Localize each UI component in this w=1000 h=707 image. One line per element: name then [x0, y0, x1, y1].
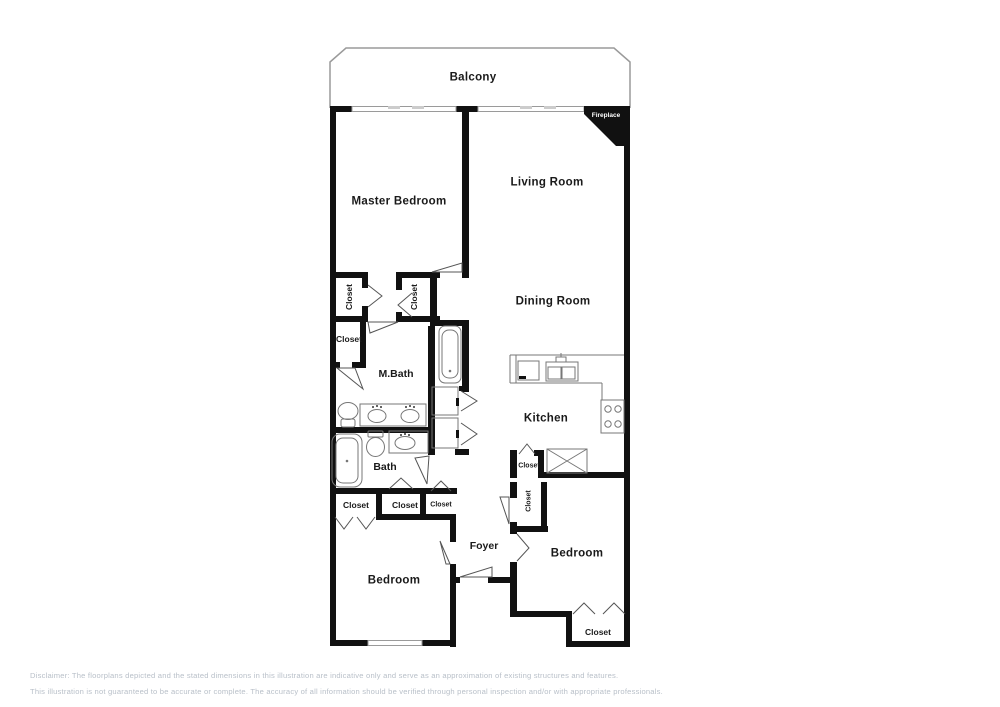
master-vanity-icon [360, 404, 426, 426]
closet-label-kitchen: Closet [518, 463, 539, 470]
room-label-bedroom-left: Bedroom [368, 575, 421, 587]
closet-label-master-left: Closet [345, 284, 354, 310]
dishwasher-icon [518, 361, 539, 380]
room-label-m-bath: M.Bath [379, 369, 414, 380]
room-label-foyer: Foyer [470, 541, 499, 552]
washer-dryer-icon [432, 387, 459, 448]
kitchen-sink-icon [546, 353, 578, 381]
floorplan-canvas [0, 0, 1000, 707]
room-label-living-room: Living Room [511, 177, 584, 189]
floorplan-page: Balcony Master Bedroom Living Room Dinin… [0, 0, 1000, 707]
room-label-master-bedroom: Master Bedroom [352, 196, 447, 208]
toilet-icon [367, 431, 385, 457]
closet-label-master-right: Closet [410, 284, 419, 310]
master-toilet-icon [338, 403, 358, 428]
closet-label-row-1: Closet [343, 501, 369, 510]
bath-vanity-icon [389, 431, 428, 453]
closet-label-bedroom-right: Closet [585, 628, 611, 637]
closet-label-hall: Closet [526, 490, 533, 511]
closet-label-mbath: Closet [336, 335, 362, 344]
walls [330, 106, 630, 647]
refrigerator-icon [547, 449, 587, 473]
stove-icon [601, 400, 624, 433]
room-label-kitchen: Kitchen [524, 413, 568, 425]
master-bathtub-icon [439, 326, 461, 383]
room-label-dining-room: Dining Room [516, 296, 591, 308]
fireplace-label: Fireplace [592, 113, 621, 120]
disclaimer-line-2: This illustration is not guaranteed to b… [30, 687, 663, 696]
room-label-bedroom-right: Bedroom [551, 548, 604, 560]
closet-label-row-3: Closet [430, 502, 451, 509]
bathtub-icon [332, 434, 362, 487]
closet-label-row-2: Closet [392, 501, 418, 510]
room-label-balcony: Balcony [450, 72, 497, 84]
disclaimer-line-1: Disclaimer: The floorplans depicted and … [30, 671, 618, 680]
room-label-bath: Bath [373, 462, 396, 473]
